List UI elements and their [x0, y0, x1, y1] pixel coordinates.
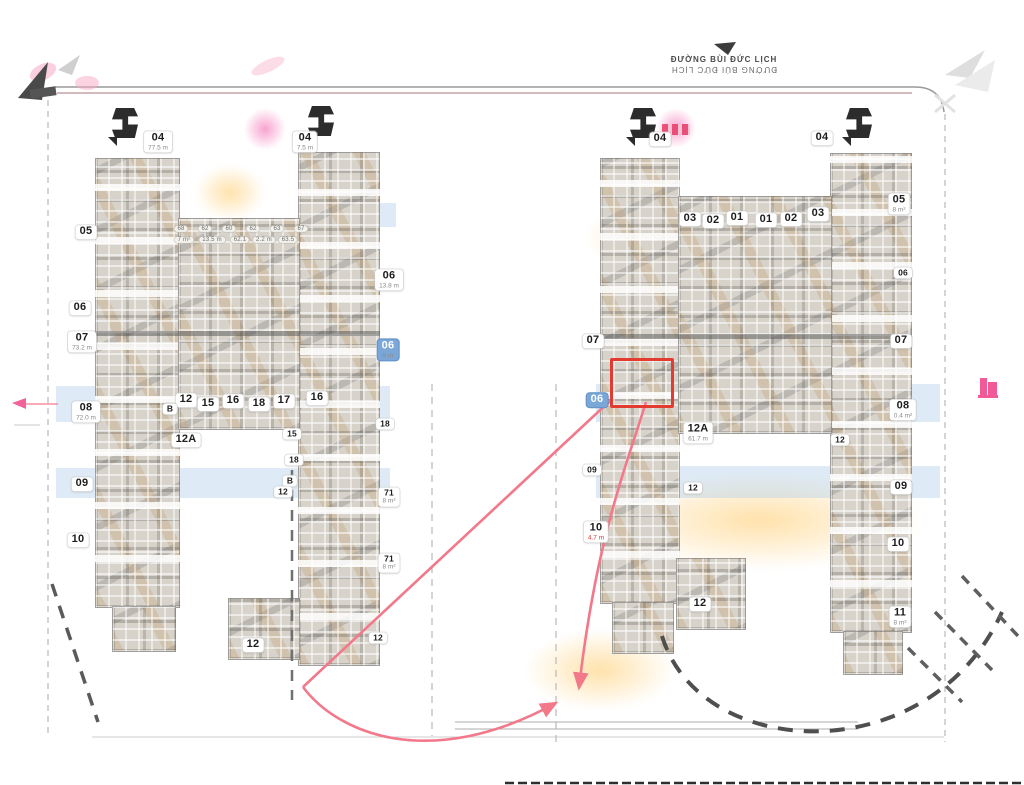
unit-label[interactable]: 12: [690, 597, 711, 611]
unit-area: 73.2 m: [72, 345, 92, 352]
unit-label[interactable]: 058 m²: [889, 193, 910, 214]
unit-number: 15: [202, 398, 215, 410]
unit-number: 06: [379, 270, 399, 282]
unit-number: 12: [694, 598, 707, 610]
unit-number: 04: [148, 132, 168, 144]
unit-label[interactable]: 0773.2 m: [68, 331, 96, 352]
unit-number: 12A: [688, 423, 709, 435]
area-value: 62: [249, 226, 256, 232]
unit-number: 10: [588, 522, 604, 534]
unit-area: 61.7 m: [688, 436, 709, 443]
unit-number: 18: [380, 420, 390, 429]
area-label: 7 m²: [175, 237, 194, 243]
area-value: 62: [201, 226, 208, 232]
unit-label[interactable]: 07: [891, 334, 912, 348]
area-value: 7 m²: [178, 237, 191, 243]
unit-number: 04: [297, 132, 313, 144]
unit-area: 8 m²: [383, 565, 396, 572]
unit-label[interactable]: 06: [70, 301, 91, 315]
unit-area: 4.7 m: [588, 535, 604, 542]
unit-label[interactable]: 104.7 m: [584, 521, 608, 542]
area-label: 63: [270, 226, 283, 232]
area-value: 62.1: [234, 237, 246, 243]
unit-number: 09: [895, 481, 908, 493]
unit-label[interactable]: 18: [376, 419, 394, 430]
unit-label[interactable]: 04: [650, 132, 671, 146]
unit-number: 02: [785, 213, 798, 225]
unit-area: 9 m: [382, 353, 395, 360]
area-value: 68: [177, 226, 184, 232]
unit-number: 06: [74, 302, 87, 314]
unit-label[interactable]: 12: [831, 435, 849, 446]
unit-label[interactable]: 12A61.7 m: [684, 422, 713, 443]
unit-label[interactable]: 06: [894, 268, 912, 279]
unit-number: 02: [707, 215, 720, 227]
unit-label[interactable]: 16: [223, 394, 244, 408]
unit-number: 12A: [176, 434, 197, 446]
unit-number: 04: [654, 133, 667, 145]
floor-plan-canvas: ĐƯỜNG BÙI ĐỨC LỊCH ĐƯỜNG BÙI ĐỨC LỊCH 05…: [0, 0, 1024, 785]
highlighted-unit-outline[interactable]: [610, 358, 674, 408]
unit-label[interactable]: 047.5 m: [293, 131, 317, 152]
unit-label[interactable]: 718 m²: [379, 554, 400, 573]
unit-number: 18: [289, 456, 299, 465]
unit-number: B: [167, 405, 173, 414]
unit-number: 10: [892, 538, 905, 550]
unit-number: 12: [373, 634, 383, 643]
unit-label[interactable]: 15: [283, 429, 301, 440]
unit-number: 12: [180, 394, 193, 406]
unit-number: 01: [731, 212, 744, 224]
unit-label[interactable]: 12A: [172, 433, 201, 447]
area-value: 2.2 m: [256, 237, 272, 243]
unit-number: 08: [76, 402, 96, 414]
unit-label[interactable]: 12: [176, 393, 197, 407]
unit-label[interactable]: B: [163, 404, 177, 415]
unit-label[interactable]: 09: [72, 477, 93, 491]
unit-label[interactable]: 09: [583, 465, 601, 476]
unit-label[interactable]: 06: [587, 393, 608, 407]
faint-arrow-icon: [935, 50, 995, 112]
unit-label[interactable]: 118 m²: [890, 606, 911, 627]
unit-label[interactable]: 12: [369, 633, 387, 644]
area-label: 2.2 m: [253, 237, 275, 243]
unit-label[interactable]: 01: [727, 211, 748, 225]
unit-number: 15: [287, 430, 297, 439]
leader-lines: [303, 399, 646, 741]
street-name-mirrored: ĐƯỜNG BÙI ĐỨC LỊCH: [640, 65, 808, 74]
unit-number: 07: [895, 335, 908, 347]
unit-number: 06: [591, 394, 604, 406]
unit-number: 06: [898, 269, 908, 278]
unit-number: 12: [278, 488, 288, 497]
unit-number: B: [287, 477, 293, 486]
unit-number: 11: [894, 607, 907, 619]
unit-number: 05: [893, 194, 906, 206]
unit-label[interactable]: 01: [756, 213, 777, 227]
tower-marker-icon: [846, 108, 872, 138]
site-boundary: [48, 87, 945, 744]
area-label: 60: [222, 226, 235, 232]
unit-number: 10: [72, 534, 85, 546]
unit-label[interactable]: 080.4 m²: [890, 399, 916, 420]
unit-area: 8 m²: [893, 207, 906, 214]
area-value: 63: [273, 226, 280, 232]
area-value: 60: [225, 226, 232, 232]
unit-label[interactable]: 0477.5 m: [144, 131, 172, 152]
unit-number: 71: [383, 555, 396, 564]
area-value: 13.5 m: [202, 237, 222, 243]
dashed-road-marks: [52, 576, 1024, 783]
unit-label[interactable]: 02: [781, 212, 802, 226]
unit-number: 17: [278, 395, 291, 407]
unit-number: 08: [894, 400, 912, 412]
unit-area: 0.4 m²: [894, 413, 912, 420]
street-marker-icon: [714, 42, 736, 55]
unit-label[interactable]: 02: [703, 214, 724, 228]
unit-label[interactable]: 069 m: [378, 339, 399, 360]
area-value: 67: [297, 226, 304, 232]
unit-number: 12: [247, 639, 260, 651]
unit-label[interactable]: B: [283, 476, 297, 487]
unit-area: 7.5 m: [297, 145, 313, 152]
street-label: ĐƯỜNG BÙI ĐỨC LỊCH ĐƯỜNG BÙI ĐỨC LỊCH: [640, 55, 808, 74]
tower-marker-icon: [112, 108, 138, 138]
unit-label[interactable]: 18: [285, 455, 303, 466]
unit-area: 77.5 m: [148, 145, 168, 152]
unit-label[interactable]: 0872.0 m: [72, 401, 100, 422]
area-label: 62: [246, 226, 259, 232]
unit-number: 09: [76, 478, 89, 490]
unit-label[interactable]: 12: [243, 638, 264, 652]
unit-area: 72.0 m: [76, 415, 96, 422]
unit-number: 16: [227, 395, 240, 407]
unit-label[interactable]: 03: [680, 212, 701, 226]
unit-label[interactable]: 03: [808, 207, 829, 221]
unit-area: 8 m²: [894, 620, 907, 627]
unit-label[interactable]: 10: [888, 537, 909, 551]
unit-label[interactable]: 17: [274, 394, 295, 408]
unit-label[interactable]: 18: [249, 397, 270, 411]
unit-number: 05: [80, 226, 93, 238]
unit-number: 03: [812, 208, 825, 220]
unit-area: 13.8 m: [379, 283, 399, 290]
unit-number: 01: [760, 214, 773, 226]
unit-label[interactable]: 05: [76, 225, 97, 239]
unit-label[interactable]: 0613.8 m: [375, 269, 403, 290]
area-label: 67: [294, 226, 307, 232]
unit-label[interactable]: 718 m²: [379, 488, 400, 507]
pink-arrow-icon: [12, 398, 58, 425]
unit-label[interactable]: 16: [307, 391, 328, 405]
unit-label[interactable]: 10: [68, 533, 89, 547]
unit-number: 18: [253, 398, 266, 410]
unit-number: 71: [383, 489, 396, 498]
area-label: 13.5 m: [199, 237, 225, 243]
pink-building-icon: [978, 378, 998, 398]
unit-number: 09: [587, 466, 597, 475]
unit-number: 12: [688, 484, 698, 493]
unit-number: 07: [587, 335, 600, 347]
unit-label[interactable]: 15: [198, 397, 219, 411]
unit-label[interactable]: 12: [274, 487, 292, 498]
area-label: 62: [198, 226, 211, 232]
unit-number: 16: [311, 392, 324, 404]
area-label: 63.5: [279, 237, 297, 243]
unit-number: 07: [72, 332, 92, 344]
unit-number: 06: [382, 340, 395, 352]
unit-number: 04: [816, 132, 829, 144]
street-name-top: ĐƯỜNG BÙI ĐỨC LỊCH: [640, 55, 808, 64]
unit-label[interactable]: 04: [812, 131, 833, 145]
unit-label[interactable]: 12: [684, 483, 702, 494]
unit-label[interactable]: 07: [583, 334, 604, 348]
unit-area: 8 m²: [383, 499, 396, 506]
unit-number: 03: [684, 213, 697, 225]
unit-label[interactable]: 09: [891, 480, 912, 494]
area-value: 63.5: [282, 237, 294, 243]
unit-number: 12: [835, 436, 845, 445]
area-label: 62.1: [231, 237, 249, 243]
area-label: 68: [174, 226, 187, 232]
